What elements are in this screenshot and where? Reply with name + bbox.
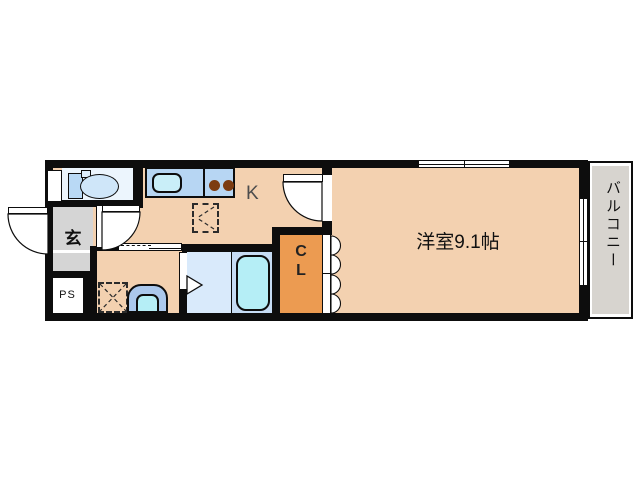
bedroom-door — [283, 174, 323, 182]
washing-machine-space-icon — [98, 282, 128, 313]
toilet-bowl — [80, 174, 119, 199]
counter-divider — [203, 169, 205, 196]
window-center-tick — [464, 161, 465, 167]
bathroom-door — [180, 253, 187, 289]
entrance-ps-divider-wall — [52, 271, 90, 278]
toilet-icon — [65, 169, 120, 201]
bedroom-label: 洋室9.1帖 — [378, 227, 538, 254]
kitchen-sink-icon — [152, 173, 182, 193]
washroom-left-wall — [90, 246, 97, 313]
bedroom-doorway — [322, 175, 332, 221]
wash-basin-bowl — [136, 294, 159, 313]
washroom-sliding-door — [118, 243, 182, 251]
entrance-label: 玄 — [54, 224, 92, 249]
wall-bottom — [45, 313, 588, 321]
wall-right-upper — [579, 160, 588, 198]
ps-right-wall — [83, 278, 90, 314]
refrigerator-space-icon — [192, 203, 219, 233]
wall-right-lower — [579, 286, 588, 321]
entry-door-arc — [8, 214, 48, 254]
closet-folding-door — [322, 235, 331, 313]
stove-burner-icon-left — [209, 180, 220, 191]
bathtub-icon — [236, 255, 270, 311]
wash-basin-icon — [127, 284, 168, 313]
closet-label-l: L — [288, 261, 314, 280]
balcony-door-mid-line — [583, 199, 584, 285]
bathroom-top-wall — [182, 244, 276, 252]
bedroom-top-window — [418, 160, 510, 168]
closet-door-mid-tick — [323, 273, 330, 274]
closet-label-c: C — [288, 242, 314, 261]
toilet-window — [47, 170, 62, 202]
kitchen-counter — [145, 167, 235, 198]
closet-top-wall — [272, 227, 332, 235]
floor-plan: 玄 PS K C L 洋室9.1帖 バルコニー — [0, 0, 638, 480]
sliding-door-track-solid — [149, 248, 181, 249]
entrance-step — [52, 253, 93, 272]
toilet-door — [102, 205, 140, 212]
pipe-space-label: PS — [52, 289, 83, 301]
balcony-label: バルコニー — [602, 180, 623, 300]
balcony-sliding-door — [579, 198, 588, 286]
bedroom-wall-upper-stub — [322, 160, 332, 175]
kitchen-label: K — [246, 183, 259, 205]
sliding-door-track-dashed — [121, 245, 151, 246]
entry-door — [8, 207, 48, 214]
entrance-doorway — [96, 206, 103, 247]
balcony-door-center-tick — [580, 241, 587, 242]
stove-burner-icon-right — [223, 180, 234, 191]
closet-label: C L — [288, 242, 314, 280]
